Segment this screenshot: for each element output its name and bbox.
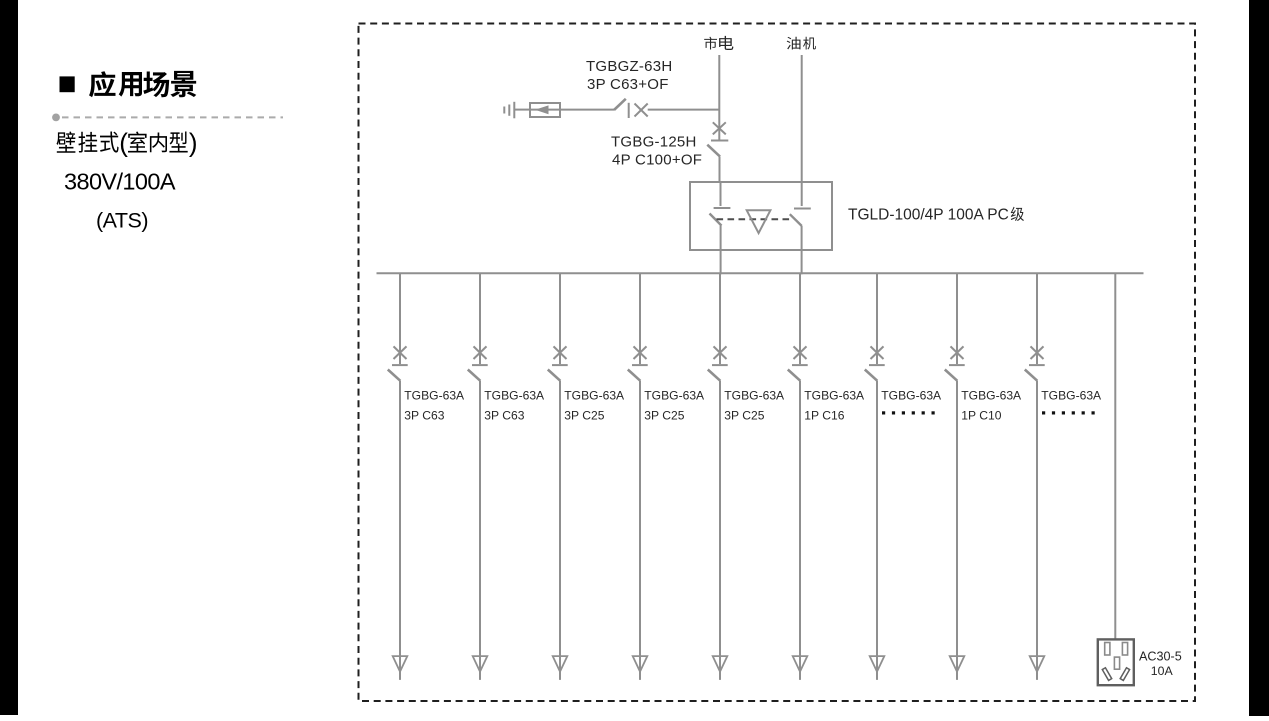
svg-text:TGBG-63A: TGBG-63A xyxy=(484,389,545,403)
svg-text:TGBG-63A: TGBG-63A xyxy=(724,389,785,403)
svg-text:3P C25: 3P C25 xyxy=(564,409,604,423)
svg-text:(ATS): (ATS) xyxy=(96,209,148,233)
svg-text:TGLD-100/4P 100A PC: TGLD-100/4P 100A PC xyxy=(848,206,1009,223)
svg-text:TGBGZ-63H: TGBGZ-63H xyxy=(586,58,672,75)
svg-text:1P C16: 1P C16 xyxy=(804,409,844,423)
svg-text:3P C25: 3P C25 xyxy=(724,409,764,423)
svg-text:TGBG-63A: TGBG-63A xyxy=(1041,389,1102,403)
svg-text:3P C63: 3P C63 xyxy=(404,409,444,423)
svg-text:4P C100+OF: 4P C100+OF xyxy=(612,151,702,168)
svg-text:3P C63+OF: 3P C63+OF xyxy=(587,76,669,93)
svg-text:3P C25: 3P C25 xyxy=(644,409,684,423)
svg-text:TGBG-63A: TGBG-63A xyxy=(404,389,465,403)
svg-text:380V/100A: 380V/100A xyxy=(64,168,176,194)
svg-text:(: ( xyxy=(119,128,128,158)
svg-text:TGBG-63A: TGBG-63A xyxy=(804,389,865,403)
svg-text:10A: 10A xyxy=(1151,664,1174,678)
svg-text:1P C10: 1P C10 xyxy=(961,409,1001,423)
svg-text:TGBG-63A: TGBG-63A xyxy=(644,389,705,403)
svg-text:TGBG-125H: TGBG-125H xyxy=(611,133,697,150)
svg-text:TGBG-63A: TGBG-63A xyxy=(961,389,1022,403)
svg-text:AC30-5: AC30-5 xyxy=(1139,649,1182,663)
svg-text:TGBG-63A: TGBG-63A xyxy=(564,389,625,403)
svg-text:TGBG-63A: TGBG-63A xyxy=(881,389,942,403)
svg-text:): ) xyxy=(189,128,198,158)
svg-text:3P C63: 3P C63 xyxy=(484,409,524,423)
